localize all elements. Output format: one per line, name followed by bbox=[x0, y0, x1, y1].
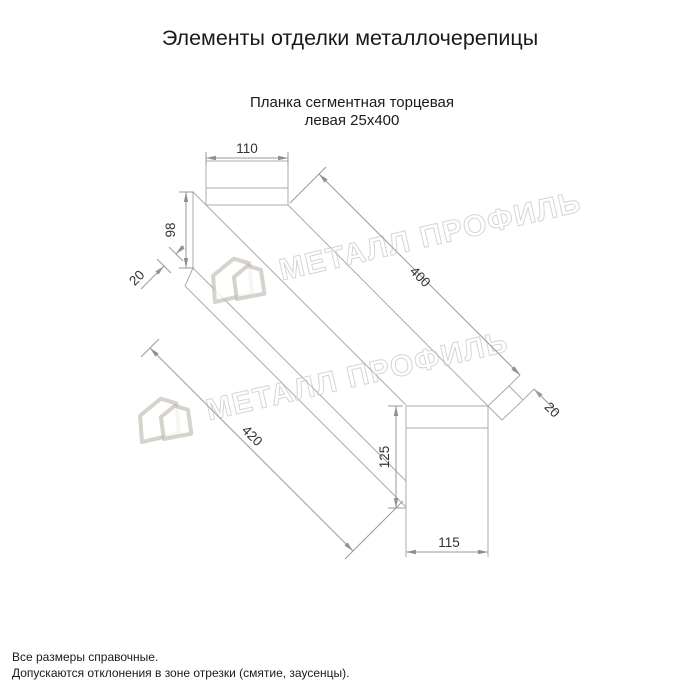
dimension-arrow bbox=[513, 368, 520, 375]
extension-line bbox=[345, 501, 403, 559]
dimension-right-width: 115 bbox=[406, 535, 488, 552]
footer-note-2: Допускаются отклонения в зоне отрезки (с… bbox=[12, 665, 349, 681]
technical-drawing: МЕТАЛЛ ПРОФИЛЬ МЕТАЛЛ ПРОФИЛЬ 110 98 bbox=[0, 0, 700, 700]
hem-tab-extension-1 bbox=[509, 375, 520, 386]
page-root: Элементы отделки металлочерепицы Планка … bbox=[0, 0, 700, 700]
extension-line bbox=[290, 167, 326, 203]
dimension-left-hem: 20 bbox=[126, 246, 184, 289]
right-end-hem-tab bbox=[488, 386, 523, 420]
house-logo-icon bbox=[206, 253, 266, 305]
watermark-band-2: МЕТАЛЛ ПРОФИЛЬ bbox=[133, 320, 512, 445]
left-end-hem-edge bbox=[185, 268, 193, 286]
footer-note-1: Все размеры справочные. bbox=[12, 649, 349, 665]
watermark-band-1: МЕТАЛЛ ПРОФИЛЬ bbox=[206, 180, 585, 305]
dimension-label-420: 420 bbox=[239, 423, 266, 450]
watermark-text-1: МЕТАЛЛ ПРОФИЛЬ bbox=[276, 186, 585, 288]
hem-tab-extension-2 bbox=[523, 389, 534, 400]
dimension-label-115: 115 bbox=[438, 535, 460, 550]
dimension-label-98: 98 bbox=[163, 222, 178, 237]
house-logo-icon bbox=[133, 393, 193, 445]
dimension-label-20-right: 20 bbox=[542, 399, 563, 420]
dimension-arrow bbox=[176, 246, 184, 254]
dimension-label-125: 125 bbox=[377, 446, 392, 469]
dimension-label-400: 400 bbox=[407, 264, 434, 291]
left-end-flange bbox=[206, 161, 288, 205]
dimension-right-hem: 20 bbox=[513, 368, 563, 420]
watermark-text-2: МЕТАЛЛ ПРОФИЛЬ bbox=[203, 326, 512, 428]
footer-notes: Все размеры справочные. Допускаются откл… bbox=[12, 649, 349, 681]
dimension-label-110: 110 bbox=[236, 141, 258, 156]
